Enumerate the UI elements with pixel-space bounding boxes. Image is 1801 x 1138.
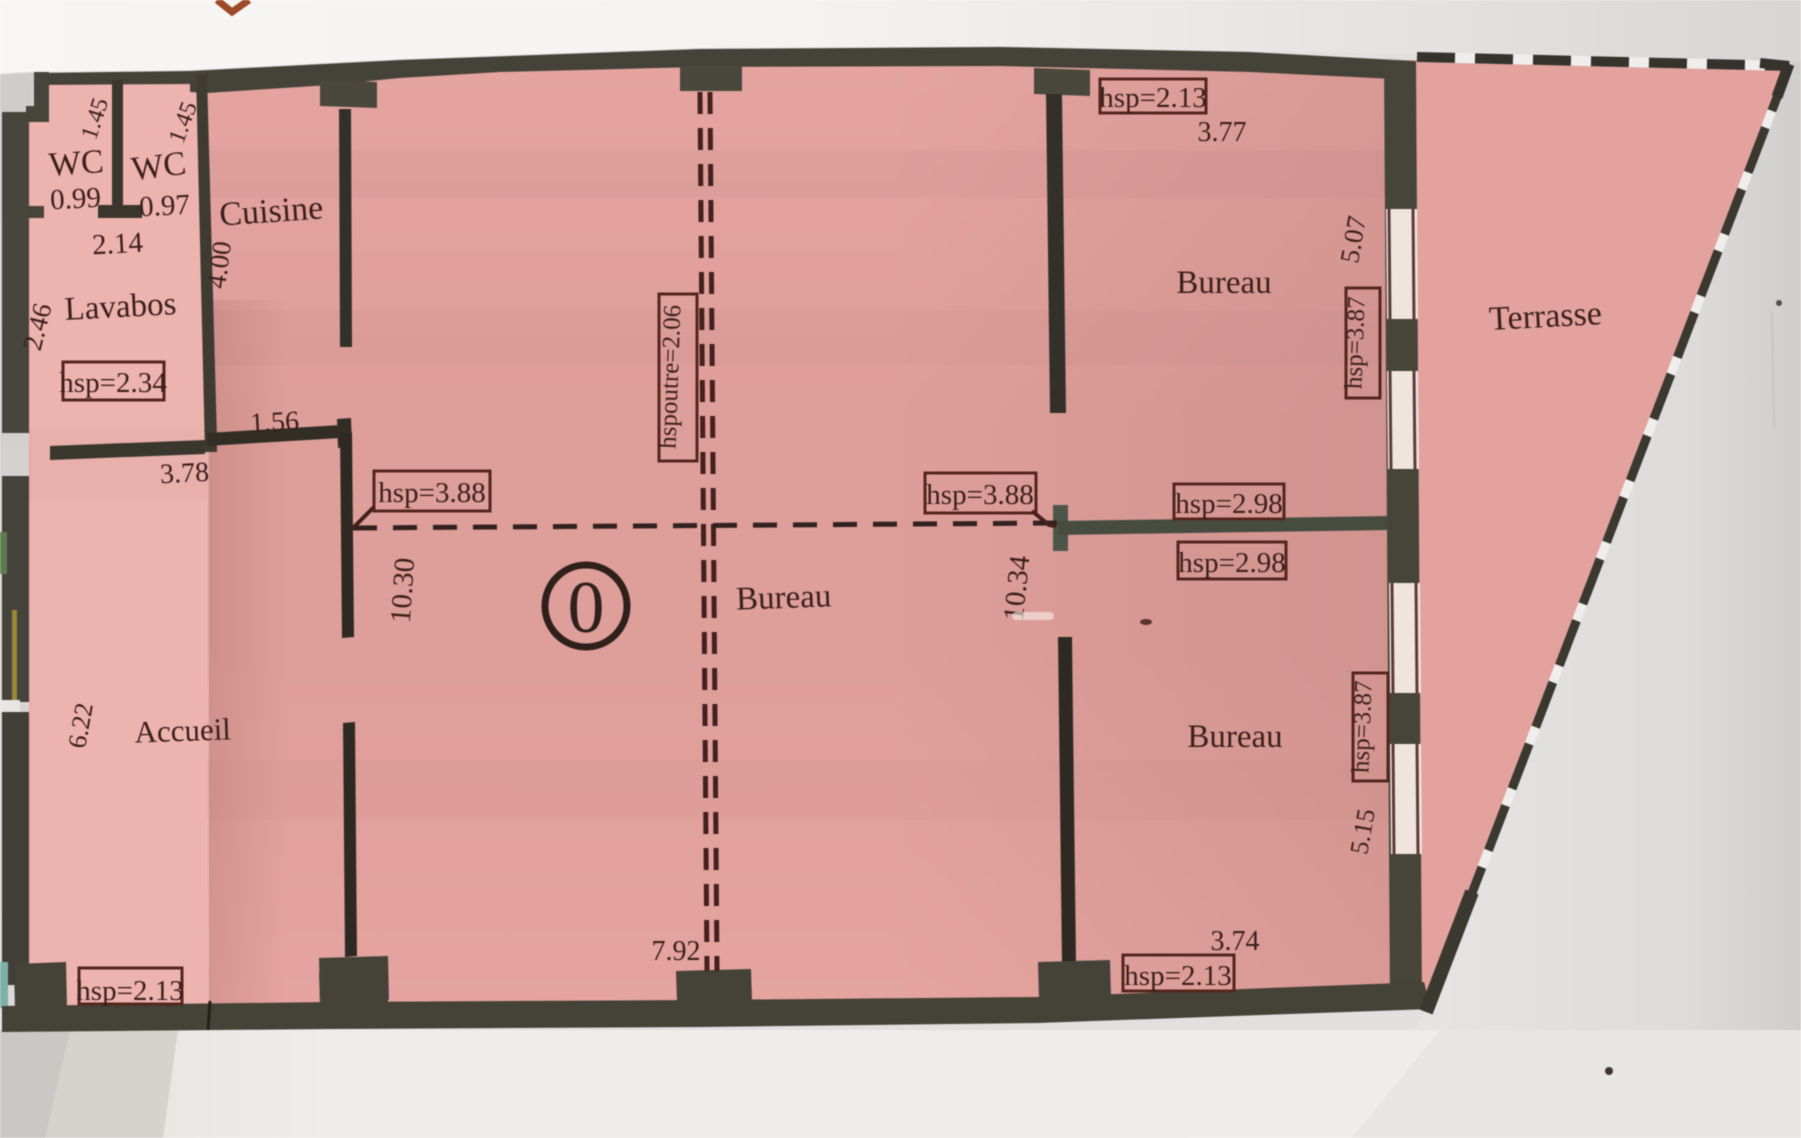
svg-text:1.56: 1.56 [249, 406, 300, 440]
svg-text:Bureau: Bureau [735, 578, 831, 617]
svg-text:hsp=2.13: hsp=2.13 [76, 975, 183, 1007]
svg-text:Cuisine: Cuisine [218, 189, 324, 233]
svg-text:WC: WC [129, 145, 188, 188]
svg-text:Accueil: Accueil [134, 711, 232, 749]
svg-text:3.74: 3.74 [1211, 926, 1260, 957]
svg-text:hsp=2.13: hsp=2.13 [1124, 960, 1231, 992]
svg-text:3.78: 3.78 [159, 457, 210, 491]
svg-text:hsp=3.88: hsp=3.88 [926, 479, 1033, 511]
svg-text:10.34: 10.34 [998, 553, 1037, 622]
svg-text:3.77: 3.77 [1198, 117, 1247, 148]
svg-text:0.97: 0.97 [138, 189, 190, 224]
svg-text:10.30: 10.30 [385, 557, 421, 624]
svg-text:hsp=2.98: hsp=2.98 [1175, 488, 1282, 520]
svg-text:hsp=3.87: hsp=3.87 [1347, 680, 1377, 773]
svg-text:0.99: 0.99 [49, 182, 101, 217]
svg-text:hsp=2.34: hsp=2.34 [59, 367, 167, 399]
svg-text:Bureau: Bureau [1176, 265, 1271, 301]
svg-text:Terrasse: Terrasse [1488, 295, 1603, 338]
svg-text:2.14: 2.14 [91, 227, 144, 262]
svg-text:Bureau: Bureau [1187, 719, 1282, 755]
svg-text:Lavabos: Lavabos [64, 286, 178, 328]
svg-text:hspoutre=2.06: hspoutre=2.06 [655, 304, 687, 449]
svg-text:hsp=3.88: hsp=3.88 [378, 477, 485, 509]
svg-text:WC: WC [48, 143, 105, 184]
svg-text:0: 0 [568, 567, 605, 649]
svg-text:hsp=2.98: hsp=2.98 [1178, 547, 1285, 579]
svg-text:hsp=3.87: hsp=3.87 [1340, 296, 1370, 389]
svg-text:hsp=2.13: hsp=2.13 [1099, 82, 1206, 114]
svg-text:7.92: 7.92 [652, 936, 701, 967]
